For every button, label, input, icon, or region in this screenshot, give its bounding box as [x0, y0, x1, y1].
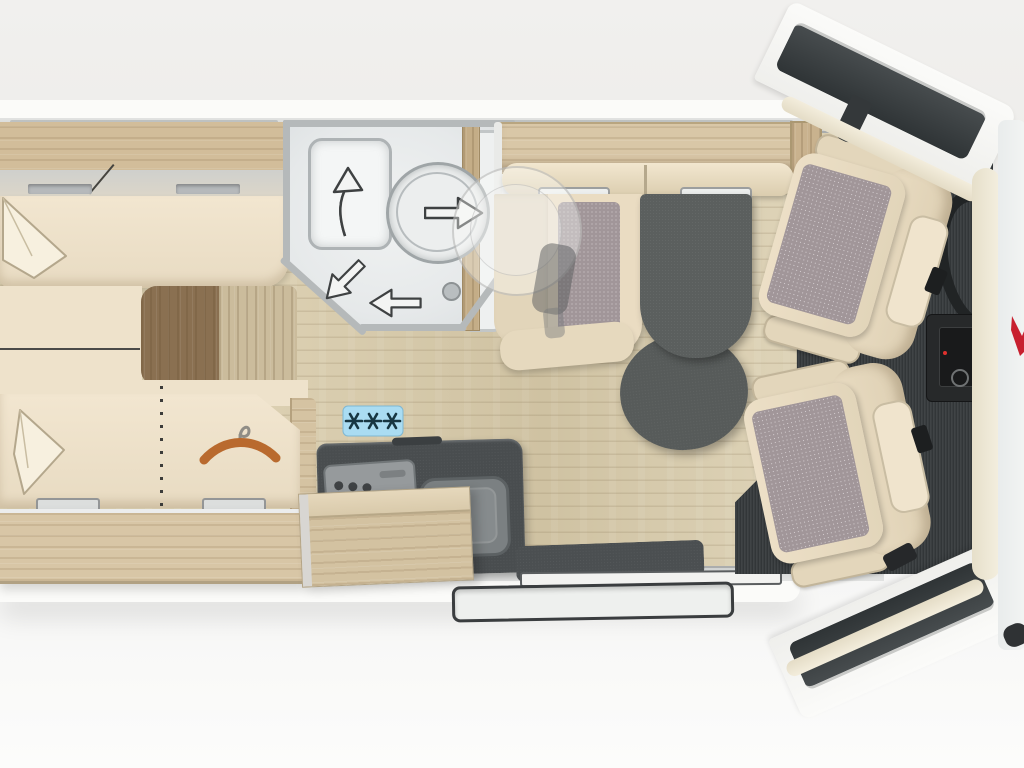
overhead-cabinet [0, 122, 290, 175]
bathroom-wall-top [283, 120, 515, 127]
bathroom-wall-left [283, 120, 290, 262]
hob-knob-2 [348, 482, 358, 492]
windscreen-edge [998, 120, 1024, 650]
platform-seam [0, 348, 140, 350]
shower-drain [442, 282, 461, 301]
bed-base-front [0, 509, 308, 584]
cab-frame-band-right [972, 168, 1000, 580]
bed-top-blanket-fold [2, 194, 74, 288]
floorplan-scene [0, 0, 1024, 768]
arrow-left-icon [368, 288, 422, 318]
console-knob [951, 369, 969, 387]
dinette-cushion-split [644, 165, 647, 194]
cabinet-handle-left [28, 184, 92, 194]
bed-extension-dotted-line [160, 386, 163, 508]
arrow-up-curved-icon [326, 166, 368, 242]
bathroom-wall-bottom [360, 324, 466, 331]
refrigerator-snowflakes-icon [342, 405, 404, 437]
step-lower-light [219, 286, 297, 386]
ghost-handle-stub [542, 307, 565, 339]
console-red-light [943, 351, 947, 355]
table-top [640, 194, 752, 358]
hob-knob-1 [334, 481, 344, 491]
cabinet-handle-right [176, 184, 240, 194]
kitchen-worktop-flap [298, 486, 474, 587]
wardrobe-hanger-icon [196, 412, 284, 470]
brand-logo-partial [1010, 312, 1024, 362]
bed-steps-recess [141, 286, 297, 386]
hob-slot [379, 470, 405, 479]
bed-bottom-blanket-fold [12, 406, 72, 502]
entry-step-tray [452, 582, 735, 623]
step-upper-dark [141, 286, 219, 386]
